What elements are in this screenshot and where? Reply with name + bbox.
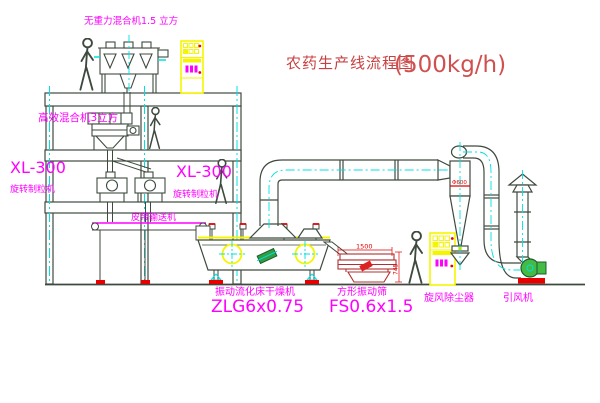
vibrating-sieve: 1500 745 bbox=[324, 242, 402, 282]
control-cabinet-2 bbox=[430, 233, 455, 285]
label-granulator-mid: 旋转制粒机 bbox=[173, 188, 218, 200]
dim-sieve-height: 745 bbox=[393, 263, 400, 275]
cabinet-display bbox=[186, 66, 198, 73]
fan-base bbox=[518, 278, 545, 284]
mixer-discharge bbox=[120, 74, 136, 88]
person-figure bbox=[150, 107, 160, 148]
zero-gravity-mixer bbox=[94, 35, 168, 93]
rotary-granulator-right bbox=[134, 172, 166, 202]
control-cabinet-1 bbox=[181, 41, 203, 93]
duct-centerline bbox=[269, 170, 448, 228]
induced-draft-fan bbox=[518, 259, 546, 284]
label-dryer-model: ZLG6x0.75 bbox=[211, 297, 304, 317]
production-line-drawing: 1500 745 Φ600 bbox=[0, 0, 600, 403]
label-fan: 引风机 bbox=[503, 291, 533, 304]
label-granulator-left: 旋转制粒机 bbox=[10, 183, 55, 195]
person-figure bbox=[409, 232, 422, 283]
floor-slab-middle bbox=[45, 150, 241, 161]
belt-conveyor bbox=[92, 223, 207, 284]
return-duct-centerline bbox=[463, 152, 520, 270]
diagram-title-capacity: (500kg/h) bbox=[394, 52, 506, 78]
label-xl300-mid: XL-300 bbox=[176, 162, 232, 181]
fan-housing bbox=[521, 259, 539, 277]
exhaust-duct bbox=[250, 160, 450, 238]
floor-slab-top bbox=[45, 93, 241, 106]
label-eff-mixer: 高效混合机3立方 bbox=[38, 111, 118, 124]
return-duct bbox=[463, 146, 521, 278]
label-belt-conveyor: 皮带输送机 bbox=[131, 211, 176, 223]
cabinet-display bbox=[436, 260, 448, 267]
flow-diagram-canvas: 1500 745 Φ600 bbox=[0, 0, 600, 403]
floor-slab-lower bbox=[45, 202, 241, 213]
person-figure bbox=[80, 39, 93, 90]
label-sieve-model: FS0.6x1.5 bbox=[329, 297, 413, 317]
dim-sieve-width: 1500 bbox=[356, 243, 373, 251]
label-cyclone: 旋风除尘器 bbox=[424, 291, 474, 304]
label-xl300-left: XL-300 bbox=[10, 158, 66, 177]
rotary-granulator-left bbox=[96, 172, 128, 202]
label-top-mixer: 无重力混合机1.5 立方 bbox=[84, 15, 178, 27]
